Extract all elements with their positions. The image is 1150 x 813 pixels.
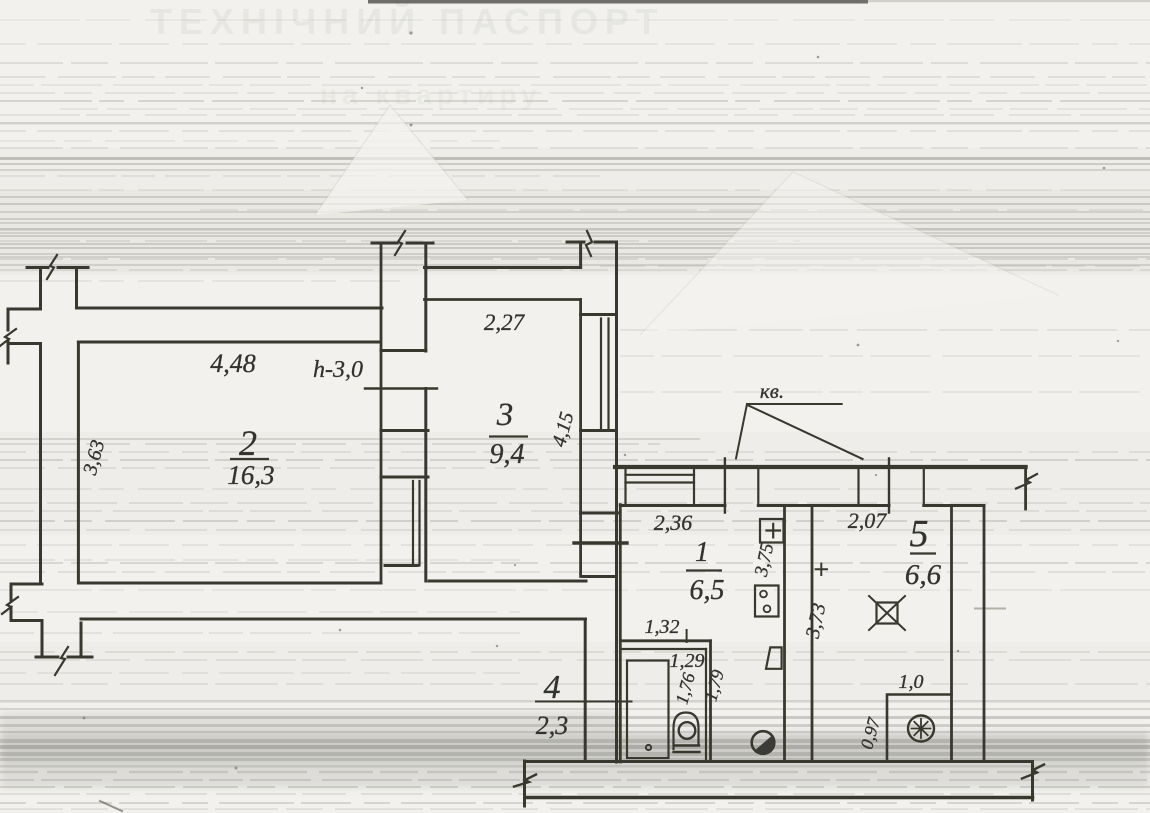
svg-text:ТЕХНІЧНИЙ ПАСПОРТ: ТЕХНІЧНИЙ ПАСПОРТ xyxy=(150,0,664,42)
svg-text:2: 2 xyxy=(239,423,257,463)
svg-text:4: 4 xyxy=(544,669,561,706)
svg-text:6,5: 6,5 xyxy=(690,575,725,606)
svg-text:h-3,0: h-3,0 xyxy=(313,357,363,383)
svg-text:2,07: 2,07 xyxy=(848,508,888,533)
svg-text:1,0: 1,0 xyxy=(899,671,924,693)
svg-text:1: 1 xyxy=(695,537,709,568)
svg-text:5: 5 xyxy=(910,513,929,555)
svg-text:2,27: 2,27 xyxy=(484,310,526,335)
svg-text:кв.: кв. xyxy=(760,379,784,403)
svg-text:2,36: 2,36 xyxy=(654,510,693,535)
svg-text:1,29: 1,29 xyxy=(670,650,705,672)
svg-text:3: 3 xyxy=(496,397,514,433)
svg-text:4,48: 4,48 xyxy=(210,349,256,378)
svg-text:1,32: 1,32 xyxy=(645,616,680,638)
svg-text:9,4: 9,4 xyxy=(490,439,525,470)
svg-text:2,3: 2,3 xyxy=(536,711,569,740)
svg-text:6,6: 6,6 xyxy=(905,559,942,591)
svg-text:16,3: 16,3 xyxy=(227,460,274,490)
svg-text:на квартиру: на квартиру xyxy=(320,79,542,110)
